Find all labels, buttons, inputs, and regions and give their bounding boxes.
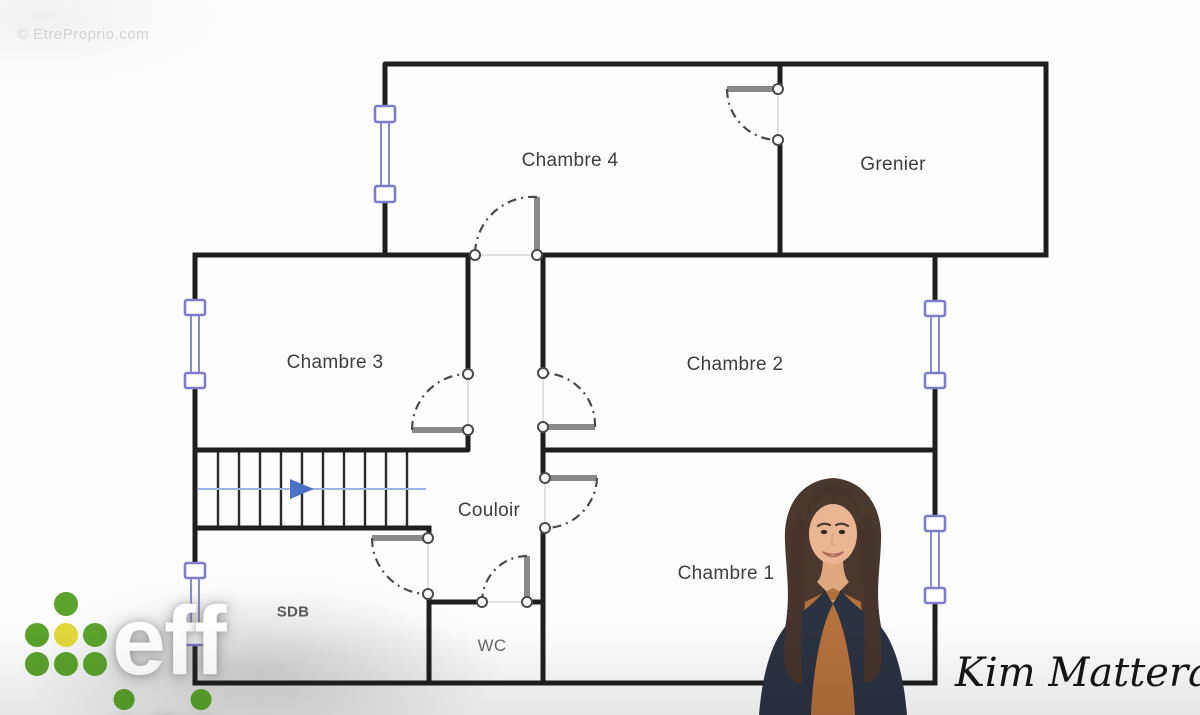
window-icon-chambre3 <box>185 300 205 388</box>
door-icon-grenier <box>727 84 783 145</box>
window-icon-sdb <box>185 563 205 645</box>
door-icon-chambre3 <box>412 369 473 435</box>
agent-photo <box>745 470 945 715</box>
room-label-grenier: Grenier <box>860 154 925 176</box>
room-label-chambre-3: Chambre 3 <box>287 352 384 374</box>
door-icon-chambre4 <box>470 197 542 260</box>
door-icon-wc <box>477 556 532 607</box>
room-label-sdb: SDB <box>277 604 310 621</box>
window-icon-chambre4 <box>375 106 395 202</box>
agent-signature: Kim Mattera <box>955 650 1200 696</box>
room-label-couloir: Couloir <box>458 500 520 522</box>
door-icon-chambre1 <box>540 473 597 533</box>
staircase-icon <box>198 452 426 526</box>
door-icon-sdb <box>372 533 433 599</box>
floor-plan <box>0 0 1200 715</box>
listing-image: Chambre 4 Grenier Chambre 3 Chambre 2 Co… <box>0 0 1200 715</box>
window-icon-chambre2 <box>925 301 945 388</box>
room-label-chambre-2: Chambre 2 <box>687 354 784 376</box>
room-label-chambre-4: Chambre 4 <box>522 150 619 172</box>
room-label-wc: WC <box>478 636 507 656</box>
watermark: © EtreProprio.com <box>17 26 149 43</box>
door-icon-chambre2 <box>538 368 595 432</box>
